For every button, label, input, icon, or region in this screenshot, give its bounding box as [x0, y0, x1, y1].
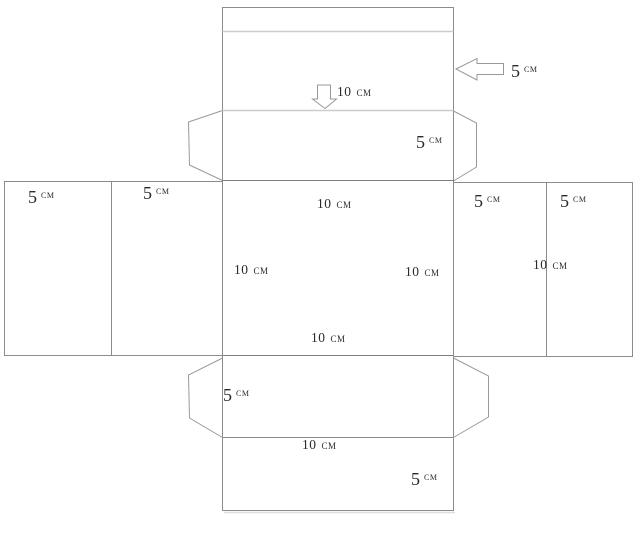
dim-unit: см [331, 331, 346, 345]
bottom-panel-outline [223, 356, 454, 438]
dim-right-inner-panel: 5 см [474, 192, 500, 210]
dim-right-panel-divider: 10 см [533, 258, 568, 272]
dim-value: 10 [302, 438, 317, 452]
dim-value: 5 [143, 184, 152, 202]
dim-value: 10 [317, 197, 332, 211]
dim-unit: см [524, 64, 537, 76]
dim-unit: см [236, 388, 249, 400]
down-arrow-icon [313, 85, 337, 109]
dim-unit: см [322, 438, 337, 452]
dim-value: 10 [533, 258, 548, 272]
dim-right-outer-panel: 5 см [560, 192, 586, 210]
dim-value: 5 [511, 62, 520, 80]
dim-unit: см [41, 190, 54, 202]
dim-front-right-edge: 10 см [405, 265, 440, 279]
dim-top-flap-height: 5 см [416, 133, 442, 151]
dim-unit: см [156, 186, 169, 198]
dim-bottom-flap-height: 5 см [223, 386, 249, 404]
dim-value: 5 [28, 188, 37, 206]
dim-unit: см [357, 85, 372, 99]
dim-left-inner-panel: 5 см [143, 184, 169, 202]
dim-value: 10 [311, 331, 326, 345]
dim-value: 10 [337, 85, 352, 99]
dim-lid-width: 10 см [337, 85, 372, 99]
dim-value: 10 [234, 263, 249, 277]
dim-unit: см [573, 194, 586, 206]
dim-unit: см [254, 263, 269, 277]
box-net-diagram: 5 см 10 см 5 см 5 см 5 см 10 см 5 см 5 с… [0, 0, 640, 537]
dim-unit: см [425, 265, 440, 279]
dim-value: 5 [223, 386, 232, 404]
dim-value: 5 [560, 192, 569, 210]
dim-bottom-lid-height: 5 см [411, 470, 437, 488]
dim-left-outer-panel: 5 см [28, 188, 54, 206]
dim-unit: см [424, 472, 437, 484]
dim-value: 5 [474, 192, 483, 210]
dim-unit: см [337, 197, 352, 211]
dim-unit: см [487, 194, 500, 206]
dim-unit: см [553, 258, 568, 272]
dim-value: 5 [411, 470, 420, 488]
left-arrow-icon [456, 59, 504, 81]
dim-bottom-lid-width: 10 см [302, 438, 337, 452]
dim-value: 5 [416, 133, 425, 151]
left-panels-outline [5, 182, 223, 356]
dim-unit: см [429, 135, 442, 147]
dim-front-left-edge: 10 см [234, 263, 269, 277]
dim-front-bottom-edge: 10 см [311, 331, 346, 345]
dim-front-top-edge: 10 см [317, 197, 352, 211]
dim-value: 10 [405, 265, 420, 279]
dim-lid-height: 5 см [511, 62, 537, 80]
